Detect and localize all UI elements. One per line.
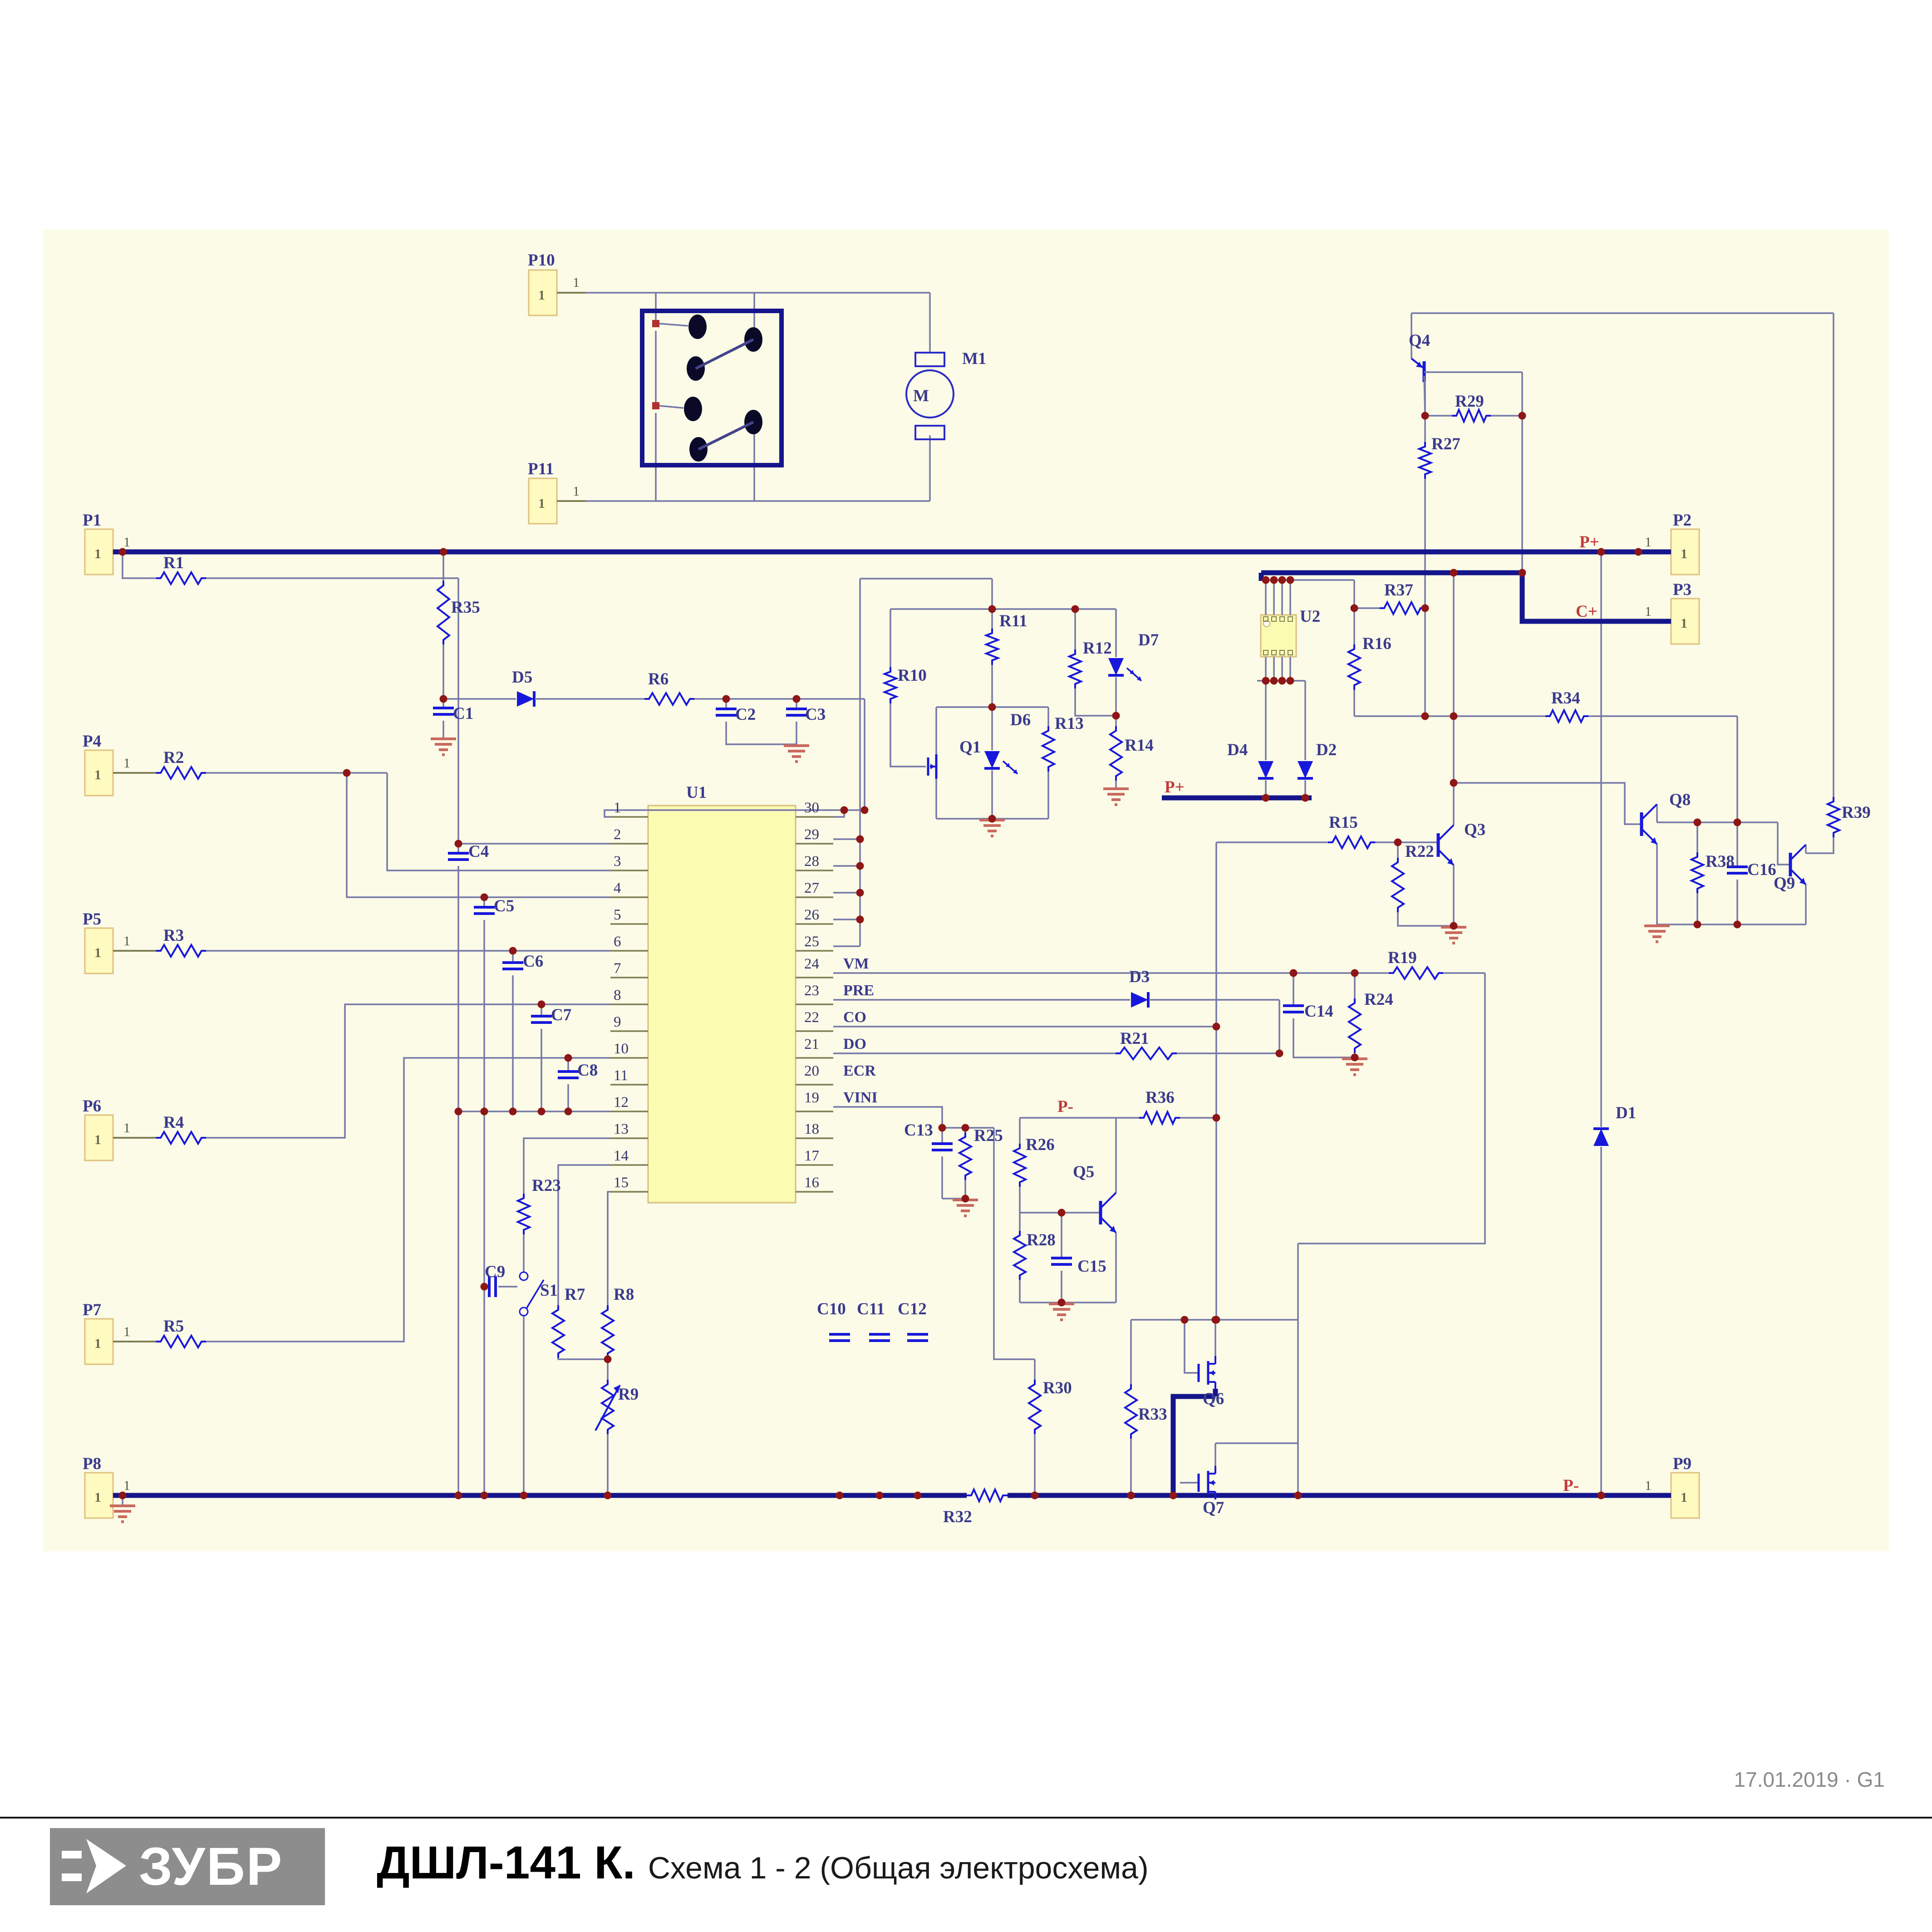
junction-dot — [1262, 576, 1270, 584]
label-R32: R32 — [943, 1508, 972, 1526]
label-Q6: Q6 — [1203, 1390, 1224, 1408]
label-1: 1 — [123, 756, 130, 771]
junction-dot — [1112, 712, 1120, 720]
label-D7: D7 — [1138, 631, 1159, 649]
label-R21: R21 — [1120, 1029, 1149, 1048]
junction-dot — [1290, 969, 1298, 977]
label-C8: C8 — [577, 1061, 598, 1080]
label-R35: R35 — [451, 598, 480, 617]
label-6: 6 — [614, 934, 621, 950]
junction-dot — [1278, 677, 1286, 685]
label-29: 29 — [804, 826, 819, 843]
junction-dot — [509, 1108, 517, 1116]
label-P11: P11 — [528, 460, 554, 478]
label-27: 27 — [804, 880, 819, 896]
label-C9: C9 — [485, 1263, 505, 1281]
junction-dot — [856, 862, 864, 870]
label-R12: R12 — [1083, 639, 1112, 658]
label-P+: P+ — [1579, 533, 1599, 551]
label-Q1: Q1 — [959, 738, 981, 757]
label-R30: R30 — [1043, 1379, 1072, 1397]
junction-dot — [520, 1492, 528, 1499]
junction-dot — [1287, 576, 1294, 584]
label-C1: C1 — [453, 704, 473, 723]
junction-dot — [988, 703, 996, 711]
junction-dot — [962, 1195, 969, 1203]
label-22: 22 — [804, 1009, 819, 1026]
label-C6: C6 — [523, 952, 543, 971]
label-C14: C14 — [1304, 1002, 1333, 1021]
doc-subtitle: Схема 1 - 2 (Общая электросхема) — [648, 1850, 1149, 1886]
label-1: 1 — [1645, 604, 1652, 619]
label-R28: R28 — [1027, 1231, 1056, 1249]
label-U1: U1 — [686, 783, 707, 802]
label-21: 21 — [804, 1036, 819, 1052]
junction-dot — [1394, 839, 1402, 846]
junction-dot — [1181, 1316, 1189, 1324]
label-12: 12 — [614, 1094, 629, 1111]
label-C3: C3 — [805, 705, 826, 724]
label-7: 7 — [614, 960, 621, 977]
switch-contact — [684, 397, 702, 421]
junction-dot — [565, 1108, 572, 1116]
junction-dot — [1351, 969, 1359, 977]
label-D3: D3 — [1129, 968, 1150, 986]
junction-dot — [1421, 713, 1429, 720]
label-1: 1 — [123, 535, 130, 550]
junction-dot — [1058, 1299, 1066, 1307]
junction-dot — [1031, 1492, 1039, 1499]
junction-dot — [988, 815, 996, 823]
label-C5: C5 — [494, 897, 514, 915]
label-1: 1 — [94, 945, 101, 960]
label-1: 1 — [94, 1490, 101, 1505]
brand-logo: ЗУБР — [50, 1828, 325, 1905]
label-P+: P+ — [1165, 778, 1185, 796]
junction-dot — [481, 1108, 488, 1116]
label-R39: R39 — [1842, 803, 1871, 822]
label-P1: P1 — [83, 511, 101, 530]
junction-dot — [1351, 1054, 1359, 1062]
label-1: 1 — [573, 275, 580, 290]
label-R36: R36 — [1145, 1088, 1175, 1107]
label-P8: P8 — [83, 1455, 101, 1473]
label-23: 23 — [804, 983, 819, 999]
label-PRE: PRE — [843, 982, 874, 999]
junction-dot — [1127, 1492, 1135, 1499]
label-R7: R7 — [565, 1285, 585, 1304]
label-11: 11 — [614, 1067, 628, 1084]
label-1: 1 — [123, 1324, 130, 1339]
label-Q5: Q5 — [1073, 1163, 1094, 1181]
label-Q7: Q7 — [1203, 1499, 1224, 1517]
label-19: 19 — [804, 1090, 819, 1106]
junction-dot — [509, 947, 517, 955]
junction-dot — [1302, 794, 1309, 802]
label-25: 25 — [804, 934, 819, 950]
junction-dot — [1519, 412, 1526, 420]
junction-dot — [1287, 677, 1294, 685]
label-R8: R8 — [614, 1285, 634, 1304]
label-10: 10 — [614, 1041, 629, 1057]
label-R33: R33 — [1138, 1405, 1167, 1424]
junction-dot — [481, 1492, 488, 1499]
label-R9: R9 — [618, 1385, 639, 1404]
chip-U1 — [648, 806, 796, 1203]
junction-dot — [1450, 779, 1458, 787]
label-R15: R15 — [1329, 813, 1358, 832]
s1-contact — [520, 1308, 528, 1316]
junction-dot — [1294, 1492, 1302, 1499]
label-S1: S1 — [540, 1281, 558, 1300]
junction-dot — [1450, 922, 1458, 930]
label-1: 1 — [1681, 616, 1687, 631]
junction-dot — [988, 605, 996, 613]
label-P-: P- — [1057, 1097, 1073, 1116]
label-1: 1 — [538, 496, 545, 511]
junction-dot — [793, 695, 801, 703]
label-R26: R26 — [1026, 1136, 1055, 1154]
label-24: 24 — [804, 956, 819, 972]
junction-dot — [455, 840, 462, 848]
label-R13: R13 — [1055, 714, 1084, 733]
junction-dot — [1635, 548, 1642, 556]
junction-dot — [1450, 713, 1458, 720]
junction-dot — [604, 1492, 612, 1499]
label-1: 1 — [573, 484, 580, 499]
junction-dot — [455, 1108, 462, 1116]
label-R4: R4 — [163, 1113, 184, 1132]
label-3: 3 — [614, 853, 621, 870]
label-D2: D2 — [1316, 741, 1337, 759]
junction-dot — [1734, 819, 1741, 826]
label-C13: C13 — [904, 1121, 933, 1140]
label-C7: C7 — [551, 1006, 571, 1024]
label-P4: P4 — [83, 732, 101, 751]
junction-dot — [1262, 677, 1270, 685]
junction-dot — [1421, 412, 1429, 420]
label-R6: R6 — [648, 670, 669, 688]
label-CO: CO — [843, 1009, 866, 1026]
label-1: 1 — [1645, 1478, 1652, 1493]
label-18: 18 — [804, 1121, 819, 1137]
junction-dot — [841, 806, 848, 814]
label-P3: P3 — [1673, 580, 1691, 599]
label-1: 1 — [94, 767, 101, 782]
schematic-sheet — [43, 229, 1889, 1551]
label-D6: D6 — [1010, 711, 1031, 729]
label-ECR: ECR — [843, 1062, 876, 1079]
junction-dot — [1213, 1114, 1220, 1122]
junction-dot — [1276, 1050, 1283, 1057]
label-14: 14 — [614, 1148, 629, 1164]
label-26: 26 — [804, 907, 819, 923]
label-R22: R22 — [1405, 842, 1434, 861]
label-15: 15 — [614, 1175, 629, 1191]
label-R10: R10 — [898, 666, 927, 685]
junction-dot — [481, 894, 488, 901]
label-1: 1 — [123, 1478, 130, 1493]
junction-dot — [1270, 576, 1278, 584]
switch-contact — [688, 315, 707, 339]
junction-dot — [939, 1124, 946, 1132]
junction-dot — [1170, 1492, 1177, 1499]
label-DO: DO — [843, 1036, 866, 1052]
label-P6: P6 — [83, 1097, 101, 1116]
junction-dot — [1262, 794, 1270, 802]
junction-dot — [1072, 605, 1079, 613]
label-P5: P5 — [83, 910, 101, 929]
label-R37: R37 — [1384, 581, 1413, 600]
q4-collector — [1424, 376, 1425, 416]
junction-dot — [1694, 921, 1701, 929]
junction-dot — [1694, 819, 1701, 826]
label-17: 17 — [804, 1148, 819, 1164]
label-9: 9 — [614, 1014, 621, 1030]
label-R25: R25 — [974, 1126, 1003, 1145]
label-R1: R1 — [163, 554, 184, 572]
label-P10: P10 — [528, 251, 555, 270]
junction-dot — [1270, 677, 1278, 685]
junction-dot — [1351, 605, 1358, 612]
label-R11: R11 — [999, 612, 1027, 630]
label-R38: R38 — [1706, 852, 1735, 871]
label-C11: C11 — [857, 1300, 885, 1318]
label-1: 1 — [94, 1336, 101, 1351]
label-4: 4 — [614, 880, 621, 896]
label-R3: R3 — [163, 926, 184, 945]
label-P7: P7 — [83, 1301, 101, 1319]
label-R29: R29 — [1455, 392, 1484, 411]
label-20: 20 — [804, 1063, 819, 1079]
label-1: 1 — [1681, 546, 1687, 561]
label-M1: M1 — [962, 349, 986, 368]
label-1: 1 — [1645, 535, 1652, 550]
label-5: 5 — [614, 907, 621, 923]
junction-dot — [1213, 1023, 1220, 1031]
label-Q3: Q3 — [1464, 821, 1485, 839]
s1-contact — [520, 1272, 528, 1280]
label-R23: R23 — [532, 1176, 561, 1195]
junction-dot — [1421, 605, 1429, 612]
label-U2: U2 — [1300, 607, 1320, 626]
junction-dot — [455, 1492, 462, 1499]
junction-dot — [565, 1054, 572, 1062]
label-D5: D5 — [512, 668, 532, 687]
junction-dot — [723, 695, 730, 703]
label-D4: D4 — [1227, 741, 1248, 759]
junction-dot — [914, 1492, 922, 1499]
switch-terminal — [652, 402, 659, 409]
document-title-block: ДШЛ-141 К. Схема 1 - 2 (Общая электросхе… — [377, 1836, 1149, 1889]
junction-dot — [1058, 1209, 1066, 1217]
junction-dot — [856, 836, 864, 843]
junction-dot — [1212, 1316, 1219, 1324]
junction-dot — [604, 1356, 612, 1363]
label-1: 1 — [538, 288, 545, 303]
label-28: 28 — [804, 853, 819, 870]
junction-dot — [343, 769, 351, 777]
label-C15: C15 — [1077, 1257, 1106, 1276]
label-P2: P2 — [1673, 511, 1691, 530]
label-R5: R5 — [163, 1317, 184, 1336]
junction-dot — [876, 1492, 884, 1499]
label-C2: C2 — [735, 705, 756, 724]
junction-dot — [1519, 569, 1526, 577]
label-16: 16 — [804, 1175, 819, 1191]
junction-dot — [538, 1108, 546, 1116]
label-1: 1 — [123, 934, 130, 949]
label-VM: VM — [843, 955, 869, 972]
label-1: 1 — [94, 1132, 101, 1147]
label-R2: R2 — [163, 748, 184, 767]
label-Q4: Q4 — [1409, 331, 1430, 350]
junction-dot — [861, 806, 869, 814]
label-1: 1 — [94, 546, 101, 561]
label-Q8: Q8 — [1669, 791, 1691, 809]
label-C+: C+ — [1576, 602, 1598, 621]
junction-dot — [1734, 921, 1741, 929]
junction-dot — [1278, 576, 1286, 584]
label-1: 1 — [614, 800, 621, 816]
label-R34: R34 — [1551, 689, 1580, 708]
brand-arrow-icon — [62, 1837, 130, 1896]
schematic-canvas: P10P11P1P2P3P4P5P6P7P8P9U1U2M1MS1R1R2R3R… — [0, 0, 1932, 1932]
label-8: 8 — [614, 987, 621, 1003]
junction-dot — [440, 548, 447, 556]
label-1: 1 — [123, 1121, 130, 1136]
junction-dot — [856, 889, 864, 897]
junction-dot — [481, 1283, 488, 1291]
label-C12: C12 — [898, 1300, 927, 1318]
label-13: 13 — [614, 1121, 629, 1137]
label-C4: C4 — [468, 842, 489, 861]
brand-text: ЗУБР — [139, 1840, 283, 1893]
label-R24: R24 — [1364, 990, 1393, 1009]
label-R16: R16 — [1362, 634, 1391, 653]
label-R14: R14 — [1125, 736, 1154, 755]
junction-dot — [538, 1001, 546, 1008]
label-P-: P- — [1563, 1476, 1579, 1495]
footer-rule — [0, 1817, 1932, 1819]
label-C10: C10 — [817, 1300, 846, 1318]
doc-model: ДШЛ-141 К. — [377, 1836, 635, 1889]
label-1: 1 — [1681, 1490, 1687, 1505]
junction-dot — [856, 916, 864, 924]
label-VINI: VINI — [843, 1089, 878, 1106]
label-Q9: Q9 — [1774, 874, 1795, 893]
label-D1: D1 — [1616, 1104, 1636, 1122]
junction-dot — [1598, 1492, 1605, 1499]
label-C16: C16 — [1747, 860, 1776, 879]
junction-dot — [440, 695, 447, 703]
label-2: 2 — [614, 826, 621, 843]
label-R19: R19 — [1388, 949, 1417, 967]
junction-dot — [836, 1492, 844, 1499]
label-30: 30 — [804, 800, 819, 816]
junction-dot — [962, 1124, 969, 1132]
label-P9: P9 — [1673, 1455, 1691, 1473]
switch-terminal — [652, 320, 659, 327]
label-M: M — [913, 387, 929, 405]
junction-dot — [1450, 569, 1458, 577]
page: P10P11P1P2P3P4P5P6P7P8P9U1U2M1MS1R1R2R3R… — [0, 0, 1932, 1932]
revision-date: 17.01.2019 · G1 — [1734, 1767, 1885, 1792]
label-R27: R27 — [1431, 435, 1460, 453]
